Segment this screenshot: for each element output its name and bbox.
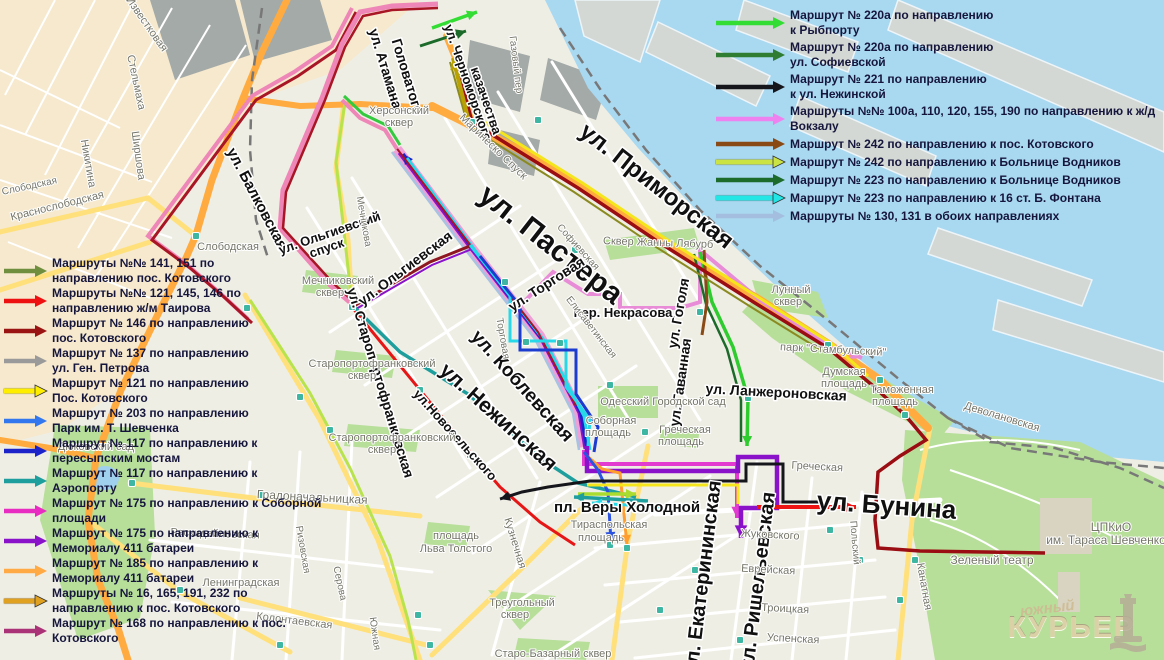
route-arrow-icon	[2, 533, 48, 549]
legend-item-label: Маршрут № 203 по направлению Парк им. Т.…	[52, 406, 249, 435]
legend-item: Маршрут № 175 по направлению к Соборной …	[2, 496, 334, 525]
transit-stop-icon	[193, 233, 200, 240]
route-arrow-icon	[714, 111, 786, 127]
route-arrow-icon	[2, 593, 48, 609]
place-label: площадь	[872, 396, 918, 408]
legend-item-label: Маршрут № 117 по направлению к Аэропорту	[52, 466, 257, 495]
legend-item-label: Маршруты №№ 121, 145, 146 по направлению…	[52, 286, 241, 315]
building	[1058, 572, 1080, 612]
place-label: Старо-Базарный сквер	[495, 648, 612, 660]
legend-item: Маршрут № 117 по направлению к пересыпск…	[2, 436, 334, 465]
legend-item: Маршруты №№ 141, 151 по направлению пос.…	[2, 256, 334, 285]
route-arrow-icon	[2, 443, 48, 459]
legend-item-label: Маршрут № 168 по направлению к пос. Кото…	[52, 616, 286, 645]
legend-item: Маршруты №№ 121, 145, 146 по направлению…	[2, 286, 334, 315]
place-label: Таможенная	[870, 384, 934, 396]
transit-stop-icon	[624, 545, 631, 552]
transit-stop-icon	[877, 377, 884, 384]
route-arrow-icon	[714, 172, 786, 188]
route-arrow-icon	[714, 190, 786, 206]
place-label: Херсонский	[369, 105, 429, 117]
route-arrow-icon	[2, 413, 48, 429]
legend-item-label: Маршрут № 175 по направлению к Соборной …	[52, 496, 321, 525]
legend-item-label: Маршрут № 185 по направлению к Мемориалу…	[52, 556, 258, 585]
legend-item: Маршрут № 221 по направлению к ул. Нежин…	[714, 72, 1164, 102]
legend-item-label: Маршрут № 117 по направлению к пересыпск…	[52, 436, 257, 465]
legend-item: Маршрут № 242 по направлению к пос. Кото…	[714, 136, 1164, 152]
place-label: площадь	[658, 436, 704, 448]
place-label: сквер	[368, 444, 396, 456]
place-label: Греческая	[659, 424, 711, 436]
transit-stop-icon	[523, 339, 530, 346]
place-label: Зеленый театр	[950, 553, 1033, 567]
transit-stop-icon	[642, 429, 649, 436]
route-arrow-icon	[2, 263, 48, 279]
place-label: площадь	[578, 532, 624, 544]
route-arrow-icon	[714, 208, 786, 224]
transit-stop-icon	[502, 279, 509, 286]
route-arrow-icon	[714, 154, 786, 170]
route-arrow-icon	[2, 383, 48, 399]
place-label: им. Тараса Шевченко	[1046, 533, 1164, 547]
legend-item: Маршрут № 223 по направлению к 16 ст. Б.…	[714, 190, 1164, 206]
legend-item-label: Маршруты №№ 141, 151 по направлению пос.…	[52, 256, 231, 285]
transit-stop-icon	[535, 117, 542, 124]
legend-item-label: Маршрут № 220а по направлению ул. Софиев…	[790, 40, 993, 70]
legend-item-label: Маршрут № 146 по направлению пос. Котовс…	[52, 316, 249, 345]
legend-item-label: Маршруты №№ 100а, 110, 120, 155, 190 по …	[790, 104, 1155, 134]
route-arrow-icon	[714, 79, 786, 95]
transit-stop-icon	[657, 607, 664, 614]
legend-item-label: Маршрут № 223 по направлению к 16 ст. Б.…	[790, 191, 1101, 206]
legend-item: Маршрут № 121 по направлению Пос. Котовс…	[2, 376, 334, 405]
legend-item-label: Маршрут № 121 по направлению Пос. Котовс…	[52, 376, 249, 405]
legend-item-label: Маршруты № 16, 165, 191, 232 по направле…	[52, 586, 248, 615]
route-arrow-icon	[2, 623, 48, 639]
legend-item: Маршрут № 168 по направлению к пос. Кото…	[2, 616, 334, 645]
transit-stop-icon	[697, 309, 704, 316]
route-arrow-icon	[714, 136, 786, 152]
legend-item-label: Маршрут № 137 по направлению ул. Ген. Пе…	[52, 346, 249, 375]
legend-item-label: Маршрут № 175 по направлению к Мемориалу…	[52, 526, 258, 555]
transit-stop-icon	[827, 527, 834, 534]
legend-right: Маршрут № 220а по направлению к Рыбпорту…	[714, 8, 1164, 226]
place-label: Троицкая	[761, 602, 810, 616]
transit-stop-icon	[415, 612, 422, 619]
legend-item-label: Маршрут № 221 по направлению к ул. Нежин…	[790, 72, 987, 102]
transit-stop-icon	[427, 642, 434, 649]
transit-stop-icon	[897, 597, 904, 604]
route-arrow-icon	[2, 503, 48, 519]
place-label: площадь	[433, 530, 479, 542]
transit-stop-icon	[607, 382, 614, 389]
legend-item: Маршрут № 146 по направлению пос. Котовс…	[2, 316, 334, 345]
legend-item: Маршруты №№ 100а, 110, 120, 155, 190 по …	[714, 104, 1164, 134]
route-arrow-icon	[2, 293, 48, 309]
route-map-screenshot: ул. Пастераул. Приморскаяул. Бунинаул. Е…	[0, 0, 1164, 660]
place-label: Думская	[822, 366, 865, 378]
place-label: Лунный	[771, 284, 810, 296]
route-arrow-icon	[714, 15, 786, 31]
place-label: Треугольный	[489, 597, 555, 609]
legend-item: Маршрут № 137 по направлению ул. Ген. Пе…	[2, 346, 334, 375]
route-arrow-icon	[2, 473, 48, 489]
route-arrow-icon	[2, 353, 48, 369]
route-arrow-icon	[2, 563, 48, 579]
place-label: Тираспольская	[571, 519, 648, 531]
legend-item-label: Маршруты № 130, 131 в обоих направлениях	[790, 209, 1059, 224]
route-arrow-icon	[2, 323, 48, 339]
legend-item: Маршруты № 16, 165, 191, 232 по направле…	[2, 586, 334, 615]
street-label: пл. Веры Холодной	[554, 499, 700, 516]
legend-left: Маршруты №№ 141, 151 по направлению пос.…	[2, 256, 334, 646]
legend-item: Маршрут № 242 по направлению к Больнице …	[714, 154, 1164, 170]
place-label: площадь	[585, 427, 631, 439]
place-label: Одесский Городской сад	[600, 396, 726, 408]
legend-item-label: Маршрут № 242 по направлению к Больнице …	[790, 155, 1121, 170]
transit-stop-icon	[557, 340, 564, 347]
legend-item-label: Маршрут № 242 по направлению к пос. Кото…	[790, 137, 1094, 152]
legend-item: Маршрут № 220а по направлению ул. Софиев…	[714, 40, 1164, 70]
place-label: сквер	[385, 117, 413, 129]
route-arrow-icon	[714, 47, 786, 63]
legend-item-label: Маршрут № 220а по направлению к Рыбпорту	[790, 8, 993, 38]
place-label: ЦПКиО	[1091, 520, 1132, 534]
place-label: Льва Толстого	[420, 543, 492, 555]
place-label: сквер	[348, 370, 376, 382]
place-label: Старопортофранковский	[329, 432, 456, 444]
legend-item: Маршрут № 223 по направлению к Больнице …	[714, 172, 1164, 188]
legend-item: Маршрут № 117 по направлению к Аэропорту	[2, 466, 334, 495]
legend-item: Маршрут № 203 по направлению Парк им. Т.…	[2, 406, 334, 435]
legend-item: Маршрут № 220а по направлению к Рыбпорту	[714, 8, 1164, 38]
place-label: площадь	[821, 378, 867, 390]
place-label: сквер	[774, 296, 802, 308]
place-label: Слободская	[197, 241, 259, 253]
place-label: Соборная	[586, 415, 637, 427]
legend-item: Маршрут № 175 по направлению к Мемориалу…	[2, 526, 334, 555]
legend-item: Маршрут № 185 по направлению к Мемориалу…	[2, 556, 334, 585]
transit-stop-icon	[902, 412, 909, 419]
legend-item: Маршруты № 130, 131 в обоих направлениях	[714, 208, 1164, 224]
place-label: сквер	[501, 609, 529, 621]
legend-item-label: Маршрут № 223 по направлению к Больнице …	[790, 173, 1121, 188]
